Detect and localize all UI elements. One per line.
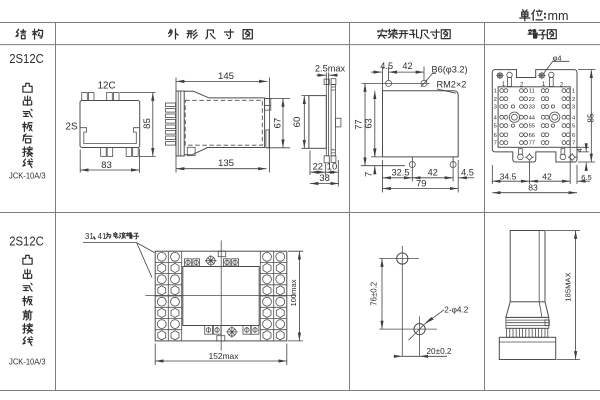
- svg-text:100max: 100max: [289, 279, 298, 306]
- svg-text:145: 145: [218, 71, 234, 82]
- svg-text:42: 42: [402, 61, 412, 71]
- svg-text:38: 38: [319, 172, 329, 183]
- svg-text:mm: mm: [548, 9, 569, 23]
- svg-text:85: 85: [587, 113, 596, 123]
- svg-text:2: 2: [494, 97, 497, 103]
- svg-text:22: 22: [313, 161, 323, 172]
- svg-text:4: 4: [575, 148, 584, 152]
- svg-text:22: 22: [529, 97, 535, 103]
- svg-text:77: 77: [354, 119, 364, 129]
- svg-text:55: 55: [529, 124, 535, 130]
- svg-text:42: 42: [542, 171, 552, 181]
- svg-text:135: 135: [218, 158, 234, 169]
- svg-text:32.5: 32.5: [392, 167, 410, 177]
- svg-text:31: 31: [85, 232, 94, 241]
- svg-text:4.5: 4.5: [380, 61, 393, 71]
- svg-text:6.5: 6.5: [581, 173, 592, 182]
- svg-text:JCK-10A/3: JCK-10A/3: [9, 357, 46, 366]
- svg-text:2S12C: 2S12C: [9, 234, 44, 249]
- svg-text:41: 41: [98, 232, 107, 241]
- svg-text:2.5max: 2.5max: [315, 64, 346, 74]
- svg-text:7: 7: [494, 141, 497, 147]
- svg-text:60: 60: [292, 117, 303, 128]
- svg-text:RM2×2: RM2×2: [437, 79, 467, 89]
- svg-text:83: 83: [101, 160, 112, 171]
- svg-text:79: 79: [416, 179, 426, 189]
- svg-text:63: 63: [363, 118, 373, 128]
- svg-text:2S12C: 2S12C: [9, 51, 44, 66]
- svg-text:3: 3: [572, 105, 575, 111]
- svg-text:7: 7: [363, 172, 373, 177]
- svg-text:76±0.2: 76±0.2: [370, 282, 379, 306]
- svg-text:66: 66: [529, 133, 535, 139]
- svg-text:34.5: 34.5: [500, 171, 517, 181]
- svg-text:12C: 12C: [98, 81, 116, 92]
- svg-text:10: 10: [327, 161, 337, 172]
- svg-text:3: 3: [494, 105, 497, 111]
- svg-text:67: 67: [272, 118, 283, 129]
- svg-text:33: 33: [529, 105, 535, 111]
- svg-text:42: 42: [428, 167, 438, 177]
- svg-text:83: 83: [528, 183, 538, 193]
- svg-text:152max: 152max: [209, 351, 240, 361]
- svg-text:20±0.2: 20±0.2: [427, 347, 452, 356]
- svg-text:JCK-10A/3: JCK-10A/3: [9, 171, 46, 180]
- svg-text:2: 2: [572, 97, 575, 103]
- svg-text:5: 5: [572, 124, 575, 130]
- svg-text:77: 77: [529, 141, 535, 147]
- svg-text:4.5: 4.5: [461, 167, 474, 177]
- svg-text:2S: 2S: [66, 122, 78, 133]
- svg-text:2-φ4.2: 2-φ4.2: [444, 306, 468, 315]
- svg-text:44: 44: [529, 115, 536, 121]
- svg-text:6: 6: [494, 133, 497, 139]
- svg-text:6: 6: [572, 133, 575, 139]
- svg-text:85: 85: [142, 118, 153, 129]
- svg-text:11: 11: [529, 89, 535, 95]
- svg-text:1: 1: [572, 89, 575, 95]
- svg-text:B6(φ3.2): B6(φ3.2): [432, 64, 468, 74]
- svg-text:7: 7: [572, 141, 575, 147]
- svg-text:1: 1: [494, 89, 497, 95]
- svg-text:185MAX: 185MAX: [563, 272, 572, 301]
- svg-text:5: 5: [494, 124, 497, 130]
